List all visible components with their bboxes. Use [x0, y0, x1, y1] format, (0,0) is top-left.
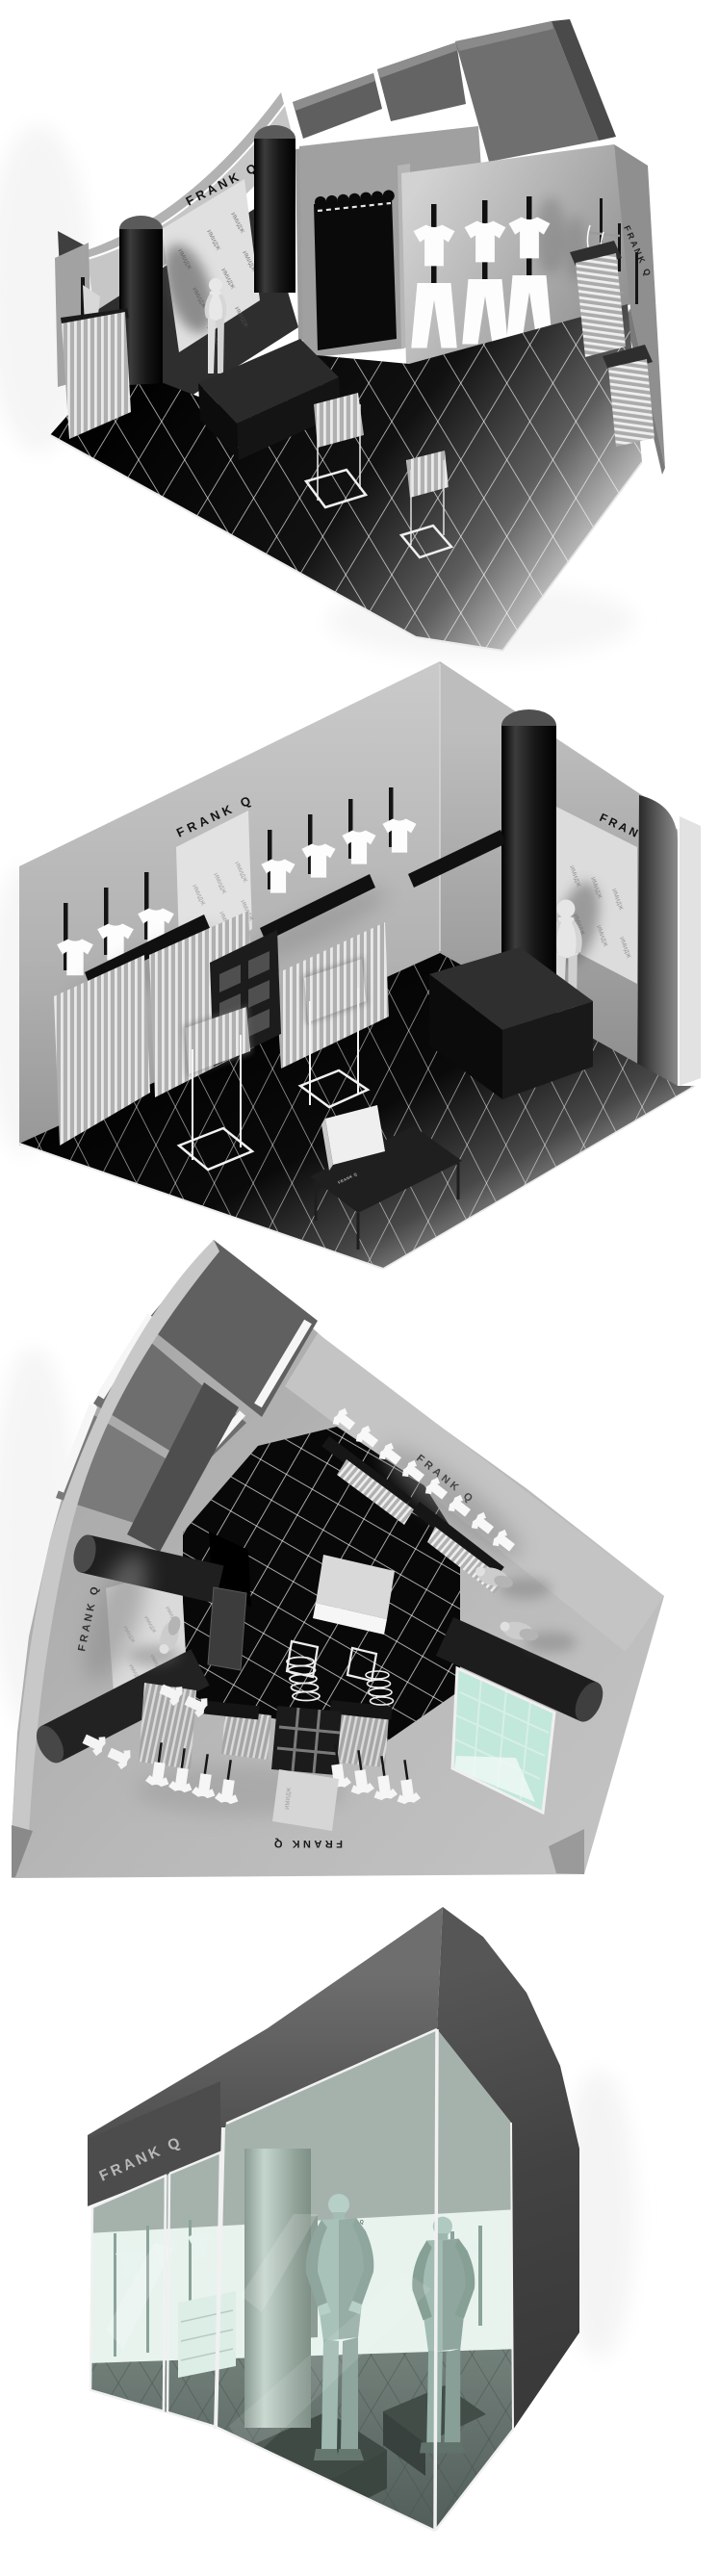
svg-text:FRANK Q: FRANK Q — [270, 1838, 343, 1849]
